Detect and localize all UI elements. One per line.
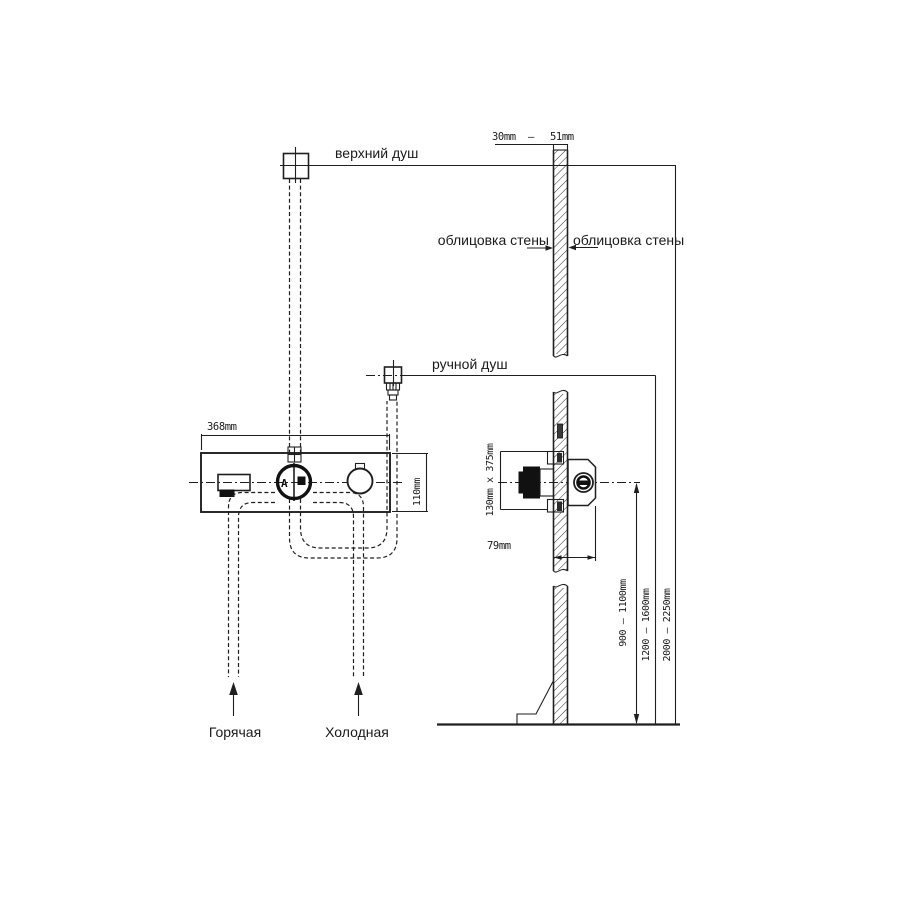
mixer-panel: A (189, 447, 403, 512)
dimension-mixer-height: 900 — 1100mm (618, 483, 639, 724)
arrow-up-icon (229, 682, 238, 695)
wall-cladding-right-label: облицовка стены (573, 232, 684, 248)
arrow-down-icon (634, 714, 639, 724)
wall-thickness-dash: — (528, 131, 535, 143)
wall-thickness-max: 51mm (550, 131, 574, 143)
hand-shower-outlet (366, 360, 403, 400)
arrow-up-icon (634, 483, 639, 493)
valve-body-black (523, 467, 540, 499)
technical-drawing-canvas: верхний душ ручной душ (0, 0, 900, 900)
top-shower-label: верхний душ (335, 145, 418, 161)
panel-width-value: 368mm (207, 421, 237, 433)
hot-pipe (229, 493, 276, 678)
cold-pipe (313, 503, 354, 678)
wall-cladding-callout-right: облицовка стены (569, 232, 685, 250)
arrow-up-icon (354, 682, 363, 695)
rough-in-depth-value: 79mm (487, 540, 511, 552)
wall-break-edge (554, 390, 568, 393)
hand-shower-height-value: 1200 — 1600mm (641, 588, 652, 661)
cold-water-label: Холодная (325, 724, 389, 740)
hose-end (390, 395, 397, 400)
dial-letter: A (281, 477, 288, 490)
shower-installation-diagram: верхний душ ручной душ (0, 0, 900, 900)
rough-in-size-value: 130mm x 375mm (485, 443, 496, 516)
handle-slot (578, 481, 590, 486)
cold-inlet-arrow (354, 682, 363, 716)
flange-screw (557, 502, 562, 512)
wall-cladding-callout-left: облицовка стены (438, 232, 553, 251)
wall-embedded-fitting (558, 424, 563, 438)
dimension-top-shower-height: 2000 — 2250mm (662, 166, 676, 725)
wall-hatch-bottom (554, 588, 568, 724)
hand-shower-label: ручной душ (432, 356, 508, 372)
valve-section (498, 452, 640, 513)
wall-hatch-top (554, 150, 568, 354)
pipes (229, 401, 398, 677)
hot-inlet-arrow (229, 682, 238, 716)
panel-height-value: 110mm (412, 478, 423, 506)
cold-pipe (313, 493, 364, 678)
hot-pipe (239, 503, 276, 678)
wall-thickness-min: 30mm (492, 131, 516, 143)
dimension-panel-width: 368mm (202, 421, 390, 450)
knob-ring (348, 469, 373, 494)
mixer-height-value: 900 — 1100mm (618, 579, 629, 647)
top-shower-height-value: 2000 — 2250mm (662, 588, 673, 661)
hose-connector (388, 390, 398, 395)
arrow-right-icon (588, 555, 596, 560)
dimension-rough-in-depth: 79mm (487, 506, 596, 561)
dimension-wall-thickness: 30mm — 51mm (492, 131, 574, 151)
wall-section (554, 150, 568, 724)
wall-hatch-middle (554, 394, 568, 570)
wall-cladding-left-label: облицовка стены (438, 232, 549, 248)
dial-mode-square (298, 477, 306, 486)
dimension-hand-shower-height: 1200 — 1600mm (641, 376, 656, 725)
skirting-profile (517, 682, 553, 725)
flange-screw (557, 453, 562, 463)
arrow-right-icon (546, 245, 554, 250)
hot-water-label: Горячая (209, 724, 261, 740)
